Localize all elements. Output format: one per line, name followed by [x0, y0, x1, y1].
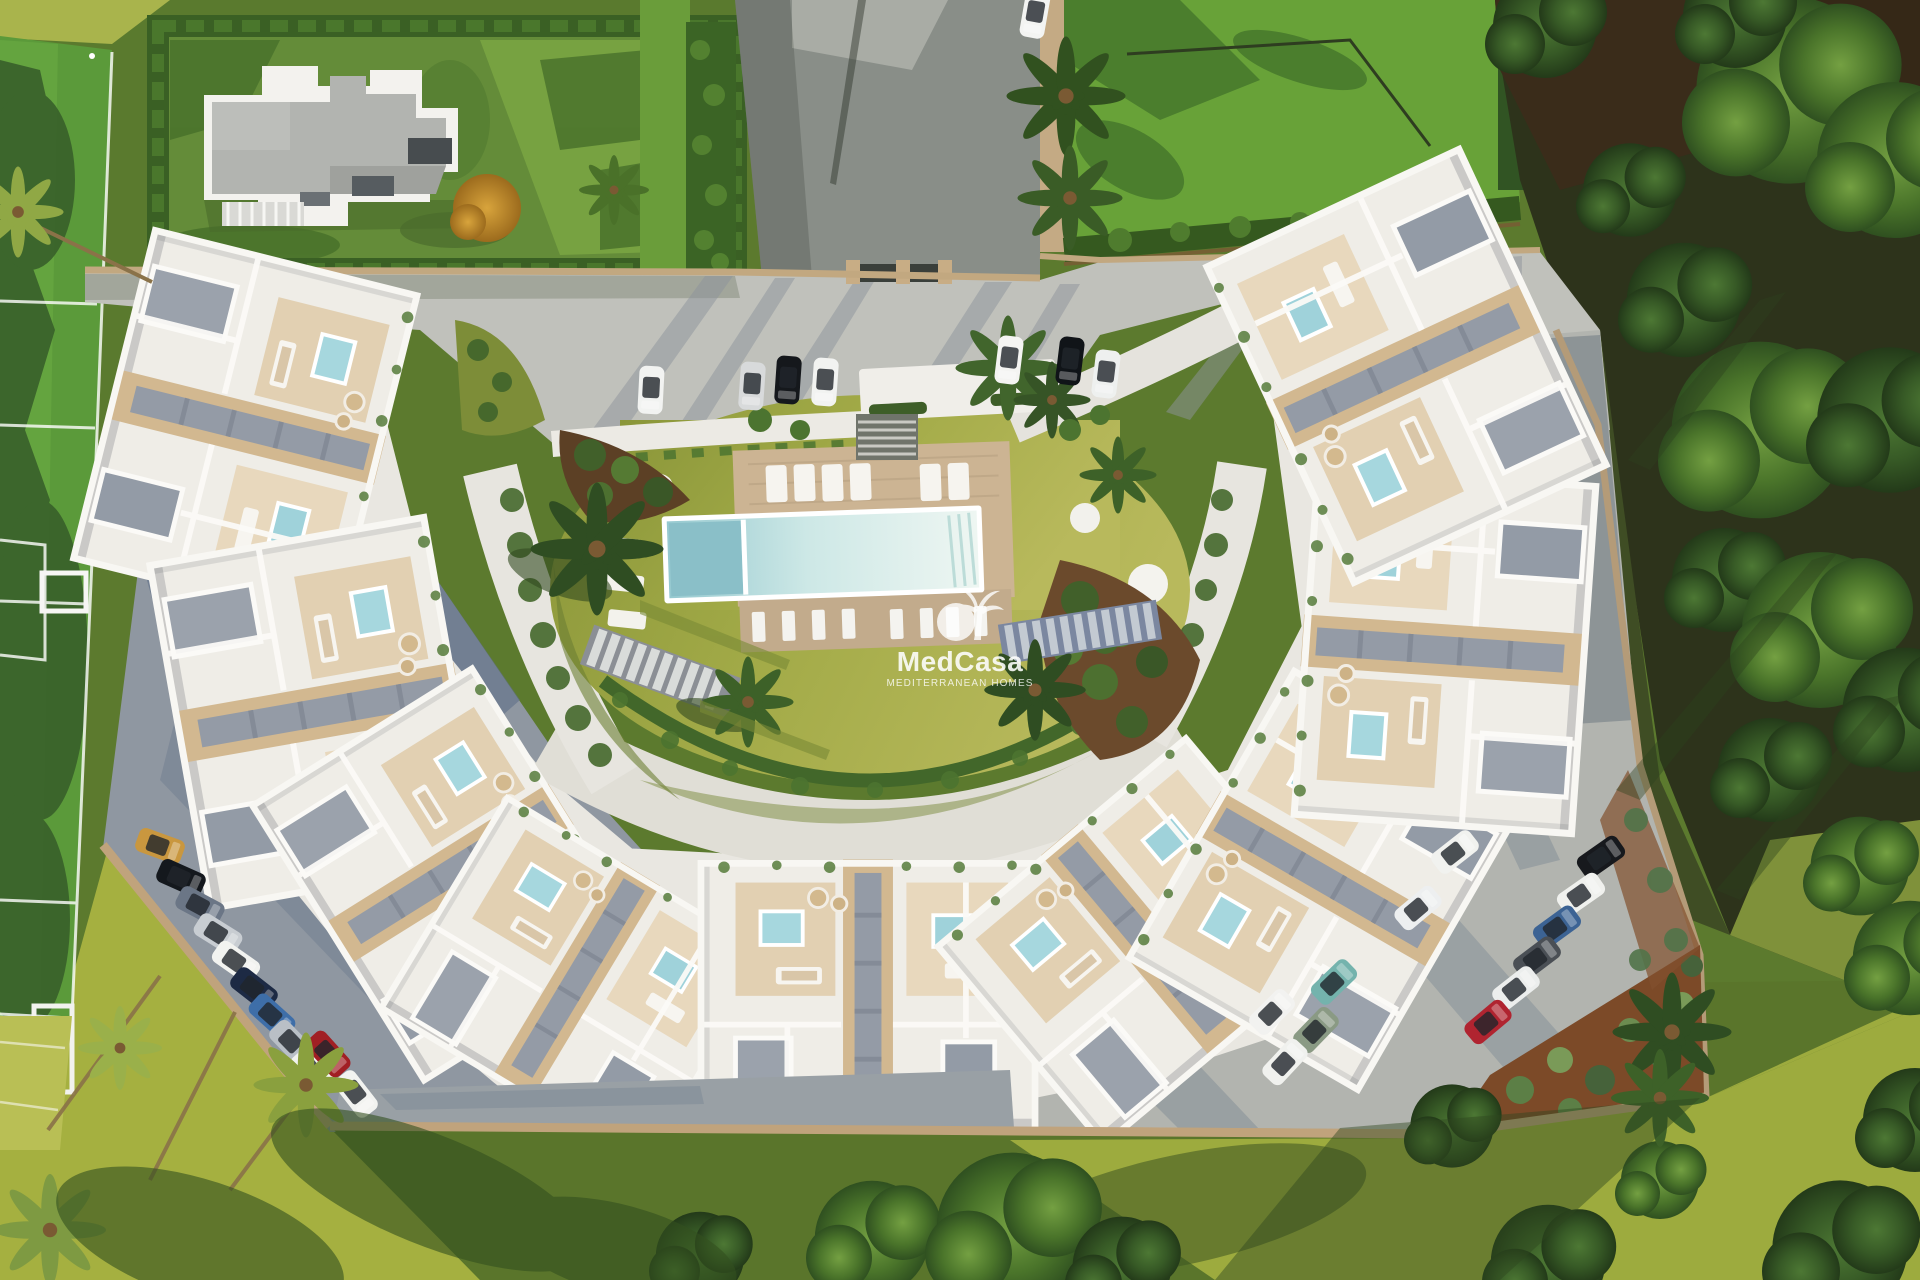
svg-text:MedCasa: MedCasa	[897, 646, 1023, 677]
svg-text:MEDITERRANEAN HOMES: MEDITERRANEAN HOMES	[886, 678, 1033, 689]
